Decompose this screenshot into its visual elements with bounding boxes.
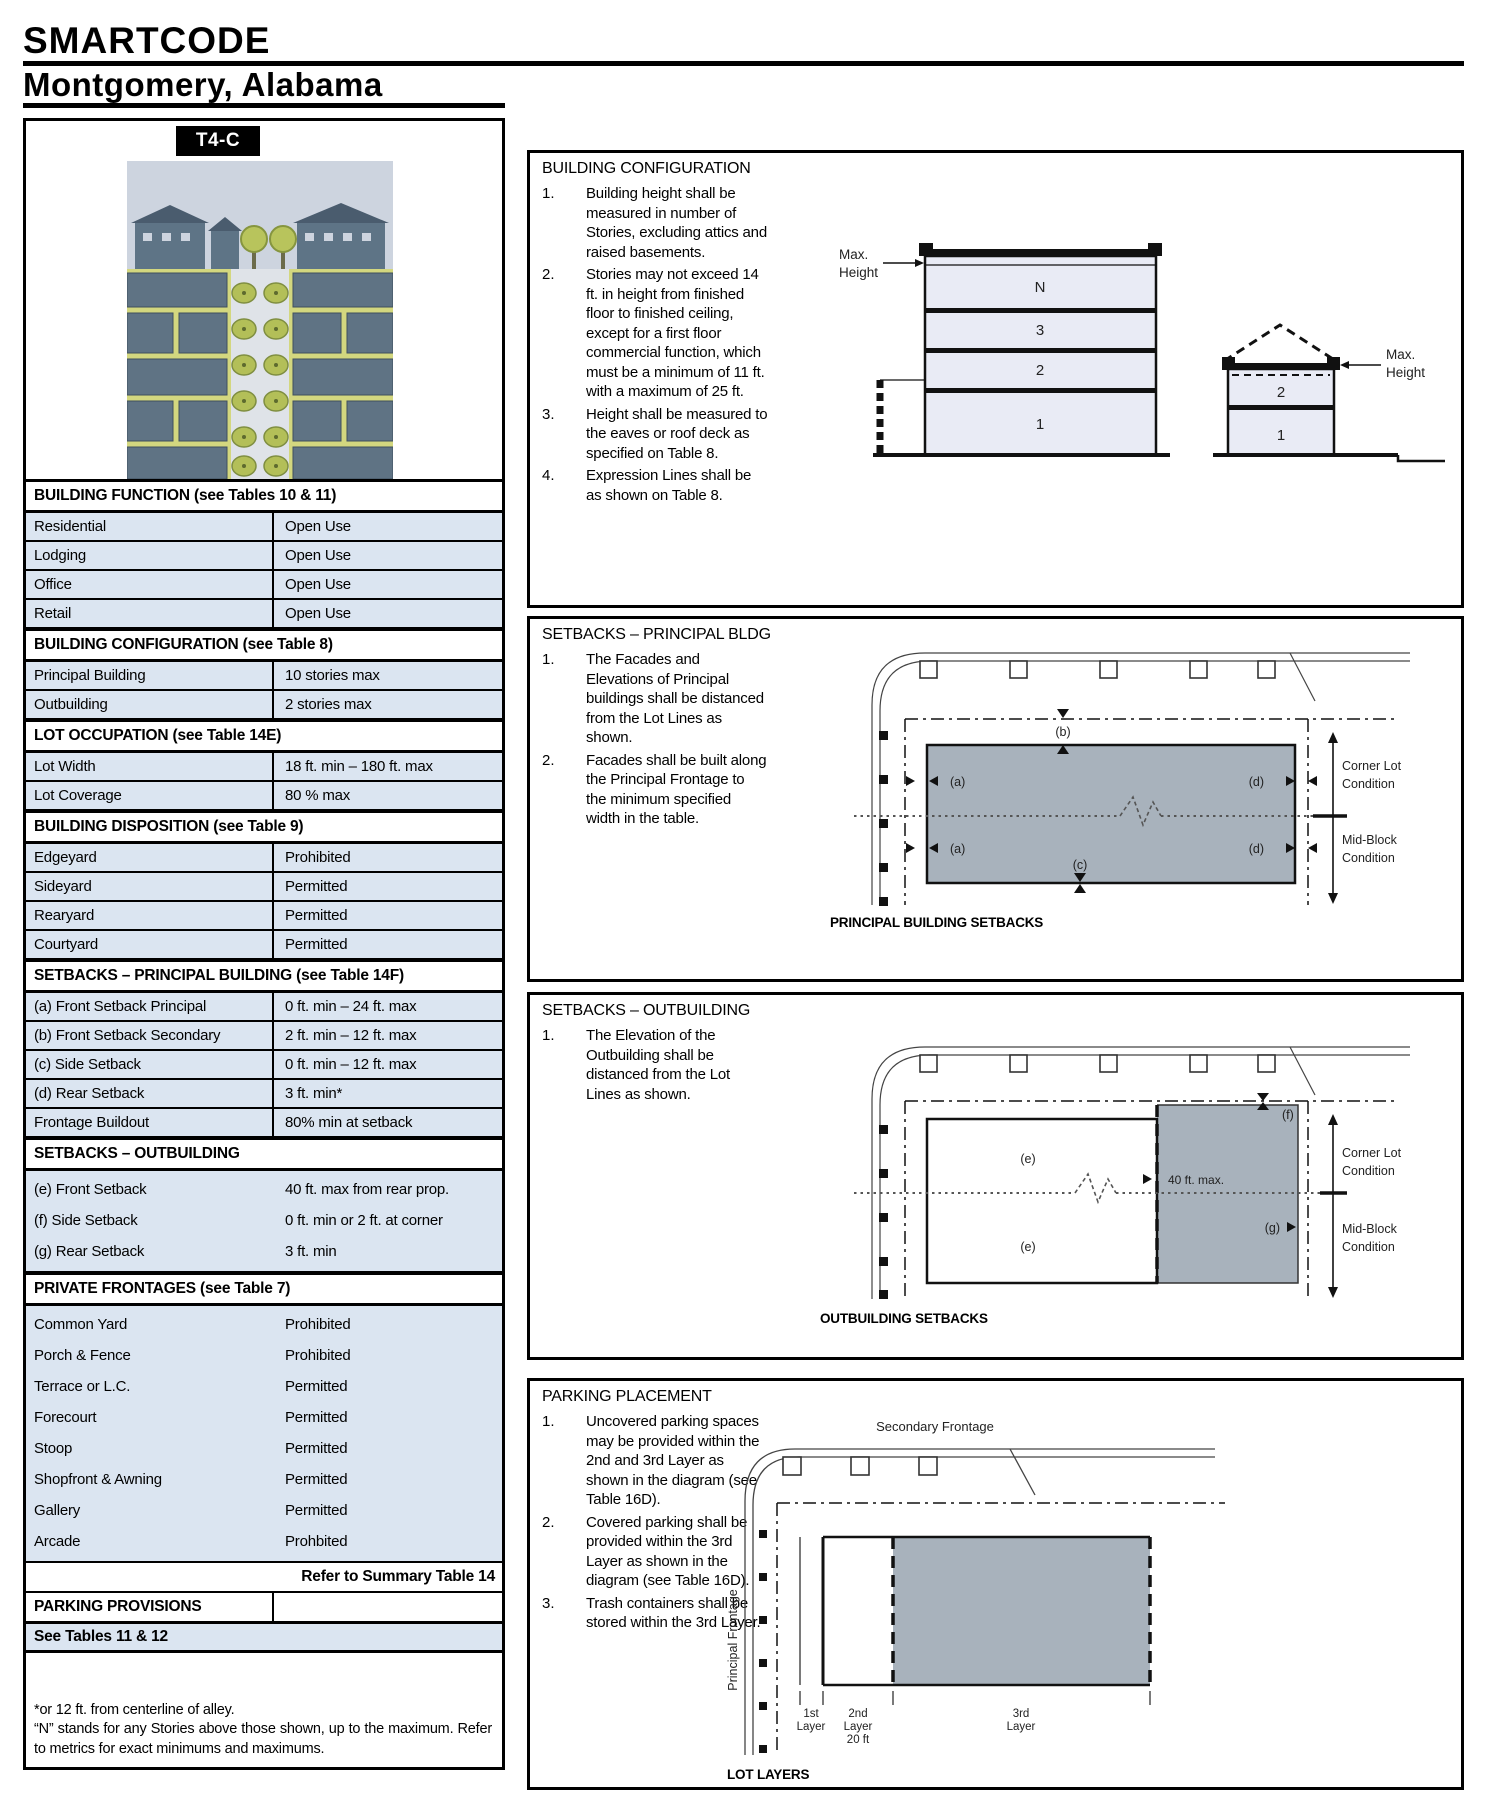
floor-label-1: 1 <box>1036 416 1044 433</box>
row-value: 18 ft. min – 180 ft. max <box>272 753 502 780</box>
row-label: Terrace or L.C. <box>26 1378 272 1395</box>
svg-text:20 ft: 20 ft <box>847 1734 870 1746</box>
rule-item: 2.Stories may not exceed 14 ft. in heigh… <box>542 265 768 402</box>
table-row: (g) Rear Setback3 ft. min <box>26 1236 502 1267</box>
row-label: Principal Building <box>26 667 272 684</box>
setback-c-label: (c) <box>1073 858 1088 872</box>
setback-a-label: (a) <box>950 775 965 789</box>
row-label: Forecourt <box>26 1409 272 1426</box>
table-row: (f) Side Setback0 ft. min or 2 ft. at co… <box>26 1205 502 1236</box>
row-label: Shopfront & Awning <box>26 1471 272 1488</box>
row-label: Rearyard <box>26 907 272 924</box>
row-label: Common Yard <box>26 1316 272 1333</box>
row-label: Retail <box>26 605 272 622</box>
row-value: Permitted <box>272 873 502 900</box>
table-row: ForecourtPermitted <box>26 1402 502 1433</box>
table-row: GalleryPermitted <box>26 1495 502 1526</box>
row-value: Permitted <box>272 1440 502 1457</box>
rule-text: Facades shall be built along the Princip… <box>586 751 768 829</box>
rule-number: 2. <box>542 751 586 829</box>
diagram-caption: PRINCIPAL BUILDING SETBACKS <box>830 915 1043 930</box>
table-row: CourtyardPermitted <box>26 931 502 960</box>
outbuilding-setbacks-diagram: (e) (e) (f) 40 ft. max. (g) Corner Lot C… <box>850 1035 1465 1305</box>
svg-text:Height: Height <box>1386 365 1425 380</box>
block-plan <box>127 269 393 479</box>
rule-number: 1. <box>542 1412 586 1510</box>
rule-number: 1. <box>542 650 586 748</box>
max-height-label-left: Max. <box>839 247 868 262</box>
setback-b-label: (b) <box>1055 725 1070 739</box>
section-header: BUILDING DISPOSITION (see Table 9) <box>26 811 502 844</box>
panel-setbacks-principal: SETBACKS – PRINCIPAL BLDG 1.The Facades … <box>527 616 1464 982</box>
row-value: Permitted <box>272 931 502 958</box>
table-row: ResidentialOpen Use <box>26 513 502 542</box>
rule-item: 1.The Facades and Elevations of Principa… <box>542 650 768 748</box>
rule-number: 3. <box>542 405 586 464</box>
svg-text:Layer: Layer <box>844 1721 873 1733</box>
refer-note: Refer to Summary Table 14 <box>301 1568 495 1586</box>
section-header: PRIVATE FRONTAGES (see Table 7) <box>26 1273 502 1306</box>
rule-number: 3. <box>542 1594 586 1633</box>
street-trees-dots <box>759 1530 767 1753</box>
max-height-label-right: Max. <box>1386 347 1415 362</box>
street-planters <box>920 661 1275 678</box>
svg-text:(a): (a) <box>950 842 965 856</box>
row-value: 10 stories max <box>272 662 502 689</box>
svg-text:Condition: Condition <box>1342 1164 1395 1178</box>
setback-g-label: (g) <box>1265 1221 1280 1235</box>
row-value: Open Use <box>272 542 502 569</box>
row-label: Edgeyard <box>26 849 272 866</box>
row-value: Open Use <box>272 600 502 627</box>
panel-title: PARKING PLACEMENT <box>542 1388 712 1406</box>
row-value: 0 ft. min or 2 ft. at corner <box>272 1212 502 1229</box>
table-row: Frontage Buildout80% min at setback <box>26 1109 502 1138</box>
svg-text:Layer: Layer <box>1007 1721 1036 1733</box>
svg-text:Condition: Condition <box>1342 777 1395 791</box>
smartcode-page: SMARTCODE Montgomery, Alabama T4-C <box>0 0 1488 1820</box>
row-label: Arcade <box>26 1533 272 1550</box>
row-value: Open Use <box>272 513 502 540</box>
row-label: (e) Front Setback <box>26 1181 272 1198</box>
street-planters <box>920 1055 1275 1072</box>
row-value: 0 ft. min – 12 ft. max <box>272 1051 502 1078</box>
row-value: Prohibited <box>272 844 502 871</box>
row-value: Prohibited <box>272 1347 502 1364</box>
zone-summary-card: T4-C <box>23 118 505 1770</box>
zone-table: BUILDING FUNCTION (see Tables 10 & 11)Re… <box>26 479 502 1653</box>
row-value: Prohibited <box>272 1316 502 1333</box>
mid-block-label: Mid-Block <box>1342 1222 1398 1236</box>
panel-setbacks-outbuilding: SETBACKS – OUTBUILDING 1.The Elevation o… <box>527 992 1464 1360</box>
svg-text:(d): (d) <box>1249 842 1264 856</box>
row-value: Prohbited <box>272 1533 502 1550</box>
row-label: Lot Width <box>26 758 272 775</box>
table-row: (c) Side Setback0 ft. min – 12 ft. max <box>26 1051 502 1080</box>
row-label: Courtyard <box>26 936 272 953</box>
third-layer-area <box>893 1537 1150 1685</box>
row-label: Gallery <box>26 1502 272 1519</box>
row-value: 40 ft. max from rear prop. <box>272 1181 502 1198</box>
section-header: BUILDING CONFIGURATION (see Table 8) <box>26 629 502 662</box>
forty-ft-max-label: 40 ft. max. <box>1168 1173 1224 1187</box>
zone-table-sections: BUILDING FUNCTION (see Tables 10 & 11)Re… <box>26 482 502 1563</box>
table-row: Terrace or L.C.Permitted <box>26 1371 502 1402</box>
table-row: Principal Building10 stories max <box>26 662 502 691</box>
row-label: (c) Side Setback <box>26 1056 272 1073</box>
row-value: Permitted <box>272 1471 502 1488</box>
rule-number: 2. <box>542 1513 586 1591</box>
rule-item: 4.Expression Lines shall be as shown on … <box>542 466 768 505</box>
refer-note-row: Refer to Summary Table 14 <box>26 1563 502 1593</box>
setback-e-label: (e) <box>1020 1152 1035 1166</box>
row-value: Permitted <box>272 902 502 929</box>
row-label: Residential <box>26 518 272 535</box>
table-row: EdgeyardProhibited <box>26 844 502 873</box>
panel-parking-placement: PARKING PLACEMENT 1.Uncovered parking sp… <box>527 1378 1464 1790</box>
section-header: LOT OCCUPATION (see Table 14E) <box>26 720 502 753</box>
row-label: Frontage Buildout <box>26 1114 272 1131</box>
zone-plan-illustration <box>127 161 393 479</box>
rule-item: 3.Height shall be measured to the eaves … <box>542 405 768 464</box>
row-value: Permitted <box>272 1378 502 1395</box>
table-row-block: Common YardProhibitedPorch & FenceProhib… <box>26 1306 502 1563</box>
table-row: Lot Coverage80 % max <box>26 782 502 811</box>
see-tables-label: See Tables 11 & 12 <box>34 1628 168 1646</box>
row-label: Outbuilding <box>26 696 272 713</box>
outbuilding-floor-1: 1 <box>1277 427 1285 444</box>
panel-rules-list: 1.The Elevation of the Outbuilding shall… <box>542 1026 768 1107</box>
row-value: 80% min at setback <box>272 1109 502 1136</box>
corner-lot-label: Corner Lot <box>1342 1146 1402 1160</box>
row-value: 0 ft. min – 24 ft. max <box>272 993 502 1020</box>
panel-rules-list: 1.The Facades and Elevations of Principa… <box>542 650 768 832</box>
table-row: ArcadeProhbited <box>26 1526 502 1557</box>
parking-provisions-value <box>272 1593 502 1621</box>
setback-f-label: (f) <box>1282 1108 1294 1122</box>
row-value: Permitted <box>272 1502 502 1519</box>
rule-number: 1. <box>542 1026 586 1104</box>
table-row: (a) Front Setback Principal0 ft. min – 2… <box>26 993 502 1022</box>
table-row: RearyardPermitted <box>26 902 502 931</box>
rule-number: 1. <box>542 184 586 262</box>
floor-label-2: 2 <box>1036 362 1044 379</box>
row-value: 2 stories max <box>272 691 502 718</box>
row-label: Lodging <box>26 547 272 564</box>
rule-text: Height shall be measured to the eaves or… <box>586 405 768 464</box>
table-row-block: (e) Front Setback40 ft. max from rear pr… <box>26 1171 502 1273</box>
table-row: SideyardPermitted <box>26 873 502 902</box>
panel-title: BUILDING CONFIGURATION <box>542 160 751 178</box>
doc-subtitle: Montgomery, Alabama <box>23 66 383 104</box>
setback-d-label: (d) <box>1249 775 1264 789</box>
panel-title: SETBACKS – PRINCIPAL BLDG <box>542 626 771 644</box>
row-label: Porch & Fence <box>26 1347 272 1364</box>
first-layer-label: 1st <box>803 1708 819 1720</box>
rule-item: 1.Building height shall be measured in n… <box>542 184 768 262</box>
svg-text:Condition: Condition <box>1342 851 1395 865</box>
row-label: Lot Coverage <box>26 787 272 804</box>
floor-label-n: N <box>1035 279 1046 296</box>
row-label: Stoop <box>26 1440 272 1457</box>
rule-number: 2. <box>542 265 586 402</box>
street-planters <box>783 1457 937 1475</box>
row-value: 2 ft. min – 12 ft. max <box>272 1022 502 1049</box>
principal-building-footprint <box>927 745 1295 883</box>
row-label: (d) Rear Setback <box>26 1085 272 1102</box>
principal-frontage-label: Principal Frontage <box>726 1589 740 1690</box>
secondary-frontage-label: Secondary Frontage <box>876 1419 994 1434</box>
row-value: Open Use <box>272 571 502 598</box>
section-header: SETBACKS – OUTBUILDING <box>26 1138 502 1171</box>
rule-item: 2.Facades shall be built along the Princ… <box>542 751 768 829</box>
table-row: (d) Rear Setback3 ft. min* <box>26 1080 502 1109</box>
table-row: Outbuilding2 stories max <box>26 691 502 720</box>
table-row: RetailOpen Use <box>26 600 502 629</box>
parking-provisions-row: PARKING PROVISIONS <box>26 1593 502 1624</box>
lot-layers-diagram: Secondary Frontage Principal Frontage <box>725 1415 1440 1761</box>
diagram-caption: OUTBUILDING SETBACKS <box>820 1311 988 1326</box>
parking-provisions-label: PARKING PROVISIONS <box>26 1598 272 1616</box>
see-tables-row: See Tables 11 & 12 <box>26 1624 502 1653</box>
floor-label-3: 3 <box>1036 322 1044 339</box>
row-value: 3 ft. min <box>272 1243 502 1260</box>
layer-ticks <box>800 1691 1150 1705</box>
table-row: StoopPermitted <box>26 1433 502 1464</box>
row-label: (a) Front Setback Principal <box>26 998 272 1015</box>
svg-text:Condition: Condition <box>1342 1240 1395 1254</box>
panel-rules-list: 1.Building height shall be measured in n… <box>542 184 768 508</box>
diagram-caption: LOT LAYERS <box>727 1767 809 1782</box>
principal-building-outline <box>927 1119 1157 1283</box>
subtitle-rule <box>23 103 505 108</box>
rule-number: 4. <box>542 466 586 505</box>
zone-tab-label: T4-C <box>176 126 260 156</box>
footnotes: *or 12 ft. from centerline of alley. “N”… <box>26 1701 502 1768</box>
principal-setbacks-diagram: (b) (a) (a) (d) (d) (c) <box>850 639 1465 911</box>
row-label: (g) Rear Setback <box>26 1243 272 1260</box>
row-label: Office <box>26 576 272 593</box>
panel-building-configuration: BUILDING CONFIGURATION 1.Building height… <box>527 150 1464 608</box>
table-row: Lot Width18 ft. min – 180 ft. max <box>26 753 502 782</box>
rule-text: The Elevation of the Outbuilding shall b… <box>586 1026 768 1104</box>
rule-text: The Facades and Elevations of Principal … <box>586 650 768 748</box>
table-row: Common YardProhibited <box>26 1309 502 1340</box>
section-header: SETBACKS – PRINCIPAL BUILDING (see Table… <box>26 960 502 993</box>
table-row: Porch & FenceProhibited <box>26 1340 502 1371</box>
row-value: 80 % max <box>272 782 502 809</box>
rule-text: Building height shall be measured in num… <box>586 184 768 262</box>
mid-block-label: Mid-Block <box>1342 833 1398 847</box>
doc-title: SMARTCODE <box>23 20 270 62</box>
row-label: (f) Side Setback <box>26 1212 272 1229</box>
second-layer-label: 2nd <box>848 1708 867 1720</box>
svg-text:(e): (e) <box>1020 1240 1035 1254</box>
table-row: LodgingOpen Use <box>26 542 502 571</box>
table-row: (e) Front Setback40 ft. max from rear pr… <box>26 1174 502 1205</box>
corner-lot-label: Corner Lot <box>1342 759 1402 773</box>
table-row: OfficeOpen Use <box>26 571 502 600</box>
building-height-diagram: N 3 2 1 Max. Height 2 1 Max. Height <box>833 233 1468 473</box>
row-value: Permitted <box>272 1409 502 1426</box>
panel-title: SETBACKS – OUTBUILDING <box>542 1002 750 1020</box>
third-layer-label: 3rd <box>1013 1708 1030 1720</box>
outbuilding-floor-2: 2 <box>1277 384 1285 401</box>
section-header: BUILDING FUNCTION (see Tables 10 & 11) <box>26 482 502 513</box>
rule-text: Expression Lines shall be as shown on Ta… <box>586 466 768 505</box>
rule-text: Stories may not exceed 14 ft. in height … <box>586 265 768 402</box>
footnote-alley: *or 12 ft. from centerline of alley. <box>34 1701 492 1721</box>
footnote-n-stories: “N” stands for any Stories above those s… <box>34 1720 492 1759</box>
svg-text:Layer: Layer <box>797 1721 826 1733</box>
row-value: 3 ft. min* <box>272 1080 502 1107</box>
table-row: (b) Front Setback Secondary2 ft. min – 1… <box>26 1022 502 1051</box>
table-row: Shopfront & AwningPermitted <box>26 1464 502 1495</box>
row-label: (b) Front Setback Secondary <box>26 1027 272 1044</box>
svg-text:Height: Height <box>839 265 878 280</box>
rule-item: 1.The Elevation of the Outbuilding shall… <box>542 1026 768 1104</box>
row-label: Sideyard <box>26 878 272 895</box>
